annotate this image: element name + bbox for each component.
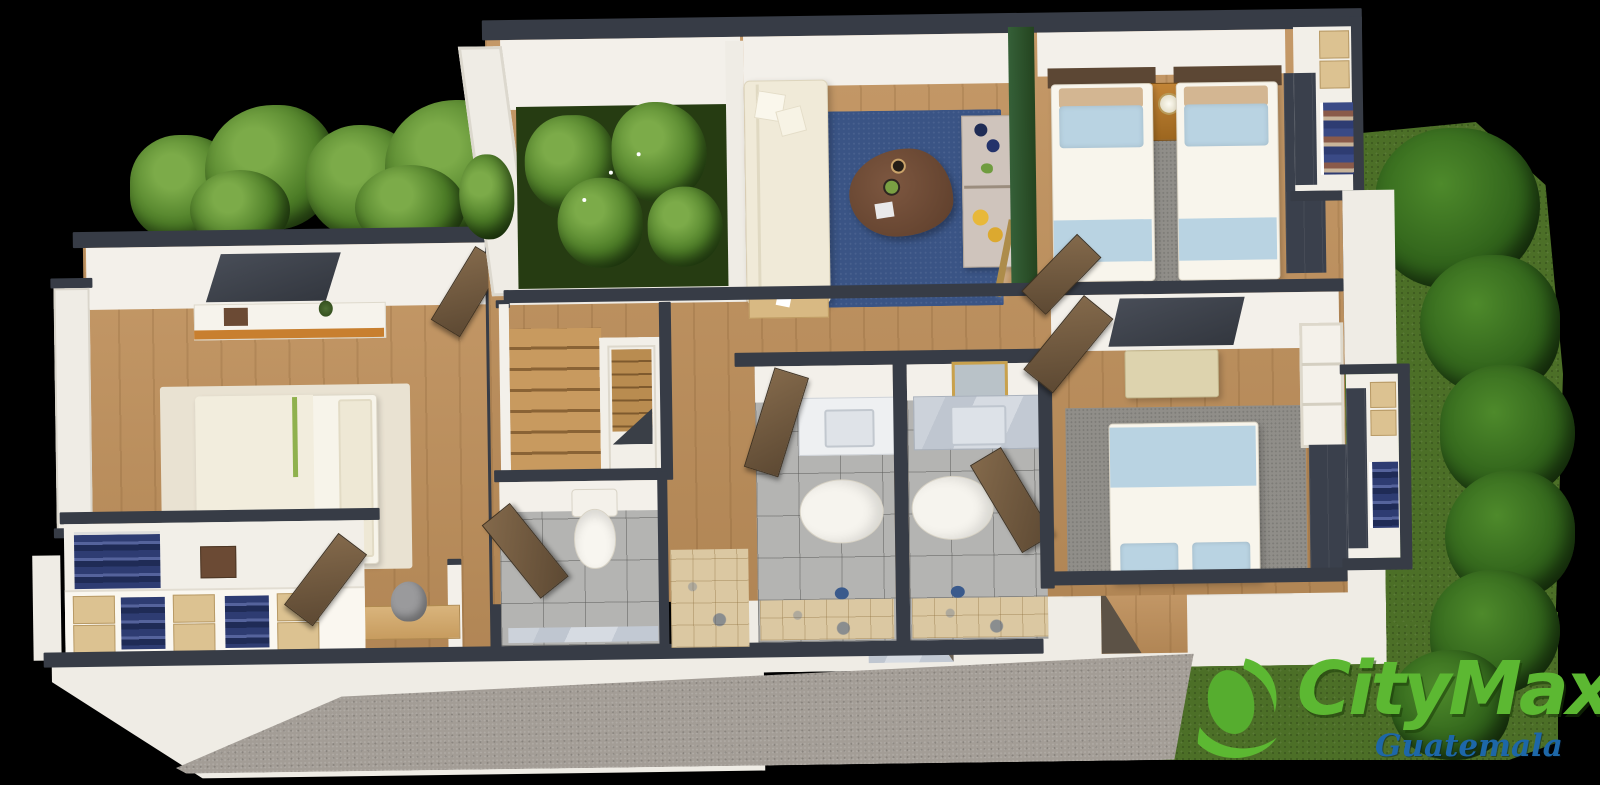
shelf-box	[1370, 410, 1396, 436]
stairs	[509, 328, 603, 477]
folded-clothes	[121, 597, 166, 650]
shower-floor	[912, 597, 1049, 639]
shelving-unit	[1299, 322, 1345, 448]
hanging-clothes	[1369, 462, 1399, 528]
pillow-blue	[1184, 103, 1269, 146]
courtyard-bush	[557, 177, 643, 268]
flower-dot	[609, 171, 613, 175]
flower-dot	[637, 152, 641, 156]
book-icon	[874, 202, 894, 220]
brand-name: CityMax	[1297, 646, 1600, 732]
hanging-clothes	[1320, 102, 1354, 174]
shower-floor	[760, 599, 895, 641]
cup-icon	[893, 161, 904, 172]
decor-box	[224, 308, 248, 326]
shelf-box	[173, 623, 215, 652]
pillow-blue	[1059, 105, 1144, 148]
flower-dot	[582, 198, 586, 202]
wall	[1342, 557, 1412, 570]
citymax-swoosh-icon	[1185, 648, 1300, 778]
plate-yellow	[972, 209, 988, 225]
floorplan-render: CityMax® Guatemala	[0, 0, 1600, 785]
folded-clothes	[225, 595, 270, 648]
plate-navy	[974, 123, 987, 136]
shelf-box	[1319, 60, 1349, 88]
shelf-box	[73, 625, 115, 654]
tv-icon	[206, 252, 341, 302]
sink	[950, 405, 1007, 446]
shelf-line	[1302, 362, 1342, 366]
plant-sprig-icon	[981, 163, 993, 173]
entry-hall-floor	[670, 549, 749, 648]
brand-region: Guatemala	[1375, 728, 1563, 764]
wardrobe-panel	[1346, 388, 1368, 548]
living-back-wall	[743, 33, 1012, 87]
right-wing-wall	[1342, 190, 1396, 369]
blanket-blue	[1110, 426, 1257, 488]
desk-chair	[391, 581, 428, 621]
tv-icon	[1108, 297, 1244, 347]
hanging-clothes	[74, 531, 161, 589]
plate-navy	[986, 139, 999, 152]
shelf-box	[277, 622, 319, 651]
wall	[50, 278, 92, 289]
shelf-box	[173, 594, 215, 623]
threshold	[508, 626, 658, 643]
plant-icon	[319, 301, 333, 317]
shelf-line	[1302, 402, 1342, 406]
courtyard-wall	[500, 37, 741, 110]
bench	[1124, 349, 1219, 398]
side-wall-windows	[53, 288, 92, 530]
shelf-box	[1319, 30, 1349, 58]
toilet-bowl	[574, 509, 617, 570]
shelf-box	[73, 596, 115, 625]
wall	[659, 302, 673, 480]
side-wall	[32, 555, 61, 660]
decor-box	[200, 546, 236, 578]
wardrobe-panel	[1294, 73, 1318, 185]
shelf-box	[1370, 382, 1396, 408]
plant-icon	[885, 181, 898, 194]
green-accent-wall	[1008, 27, 1038, 293]
blanket-blue	[1179, 217, 1278, 260]
brand-wordmark: CityMax®	[1297, 652, 1600, 726]
sink	[824, 409, 875, 448]
citymax-logo: CityMax® Guatemala	[1185, 640, 1585, 780]
